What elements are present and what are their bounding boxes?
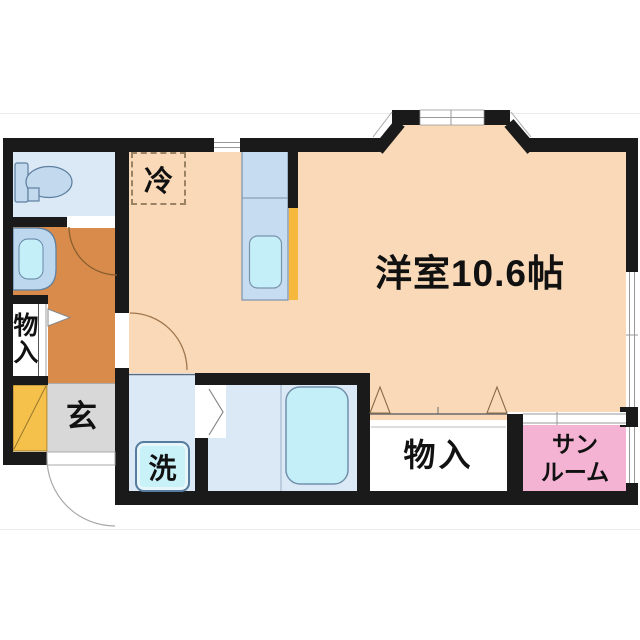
kitchen-counter-icon xyxy=(242,150,288,300)
washbasin-icon xyxy=(13,228,56,290)
entrance-door-arc xyxy=(47,458,115,526)
storage-left-interior xyxy=(13,304,47,376)
entrance-door xyxy=(47,452,115,465)
refrigerator-label: 冷 xyxy=(144,158,173,200)
bathtub-icon xyxy=(286,387,348,484)
right-wall-window xyxy=(626,272,638,407)
washing-machine-box: 洗 xyxy=(135,441,190,492)
storage-bottom-interior xyxy=(370,420,507,491)
genkan-floor xyxy=(48,383,115,452)
refrigerator-space-box: 冷 xyxy=(131,152,186,205)
kitchen-sink-icon xyxy=(250,236,282,288)
sunroom-side-window xyxy=(626,427,638,483)
toilet-doorway xyxy=(67,216,115,228)
bay-window xyxy=(420,110,484,125)
western-room xyxy=(129,152,626,373)
sunroom-sliding-door xyxy=(523,412,626,425)
floorplan-page: 洋室10.6帖 冷 物入 玄 洗 物入 サン ルーム xyxy=(0,0,640,640)
counter-partition xyxy=(289,208,298,300)
kitchen-window xyxy=(214,138,240,152)
washing-machine-label: 洗 xyxy=(148,447,176,487)
bathroom-doorway xyxy=(195,385,226,438)
floorplan-drawing xyxy=(0,0,640,640)
main-room-doorway xyxy=(115,313,129,368)
sunroom-floor xyxy=(523,425,627,491)
